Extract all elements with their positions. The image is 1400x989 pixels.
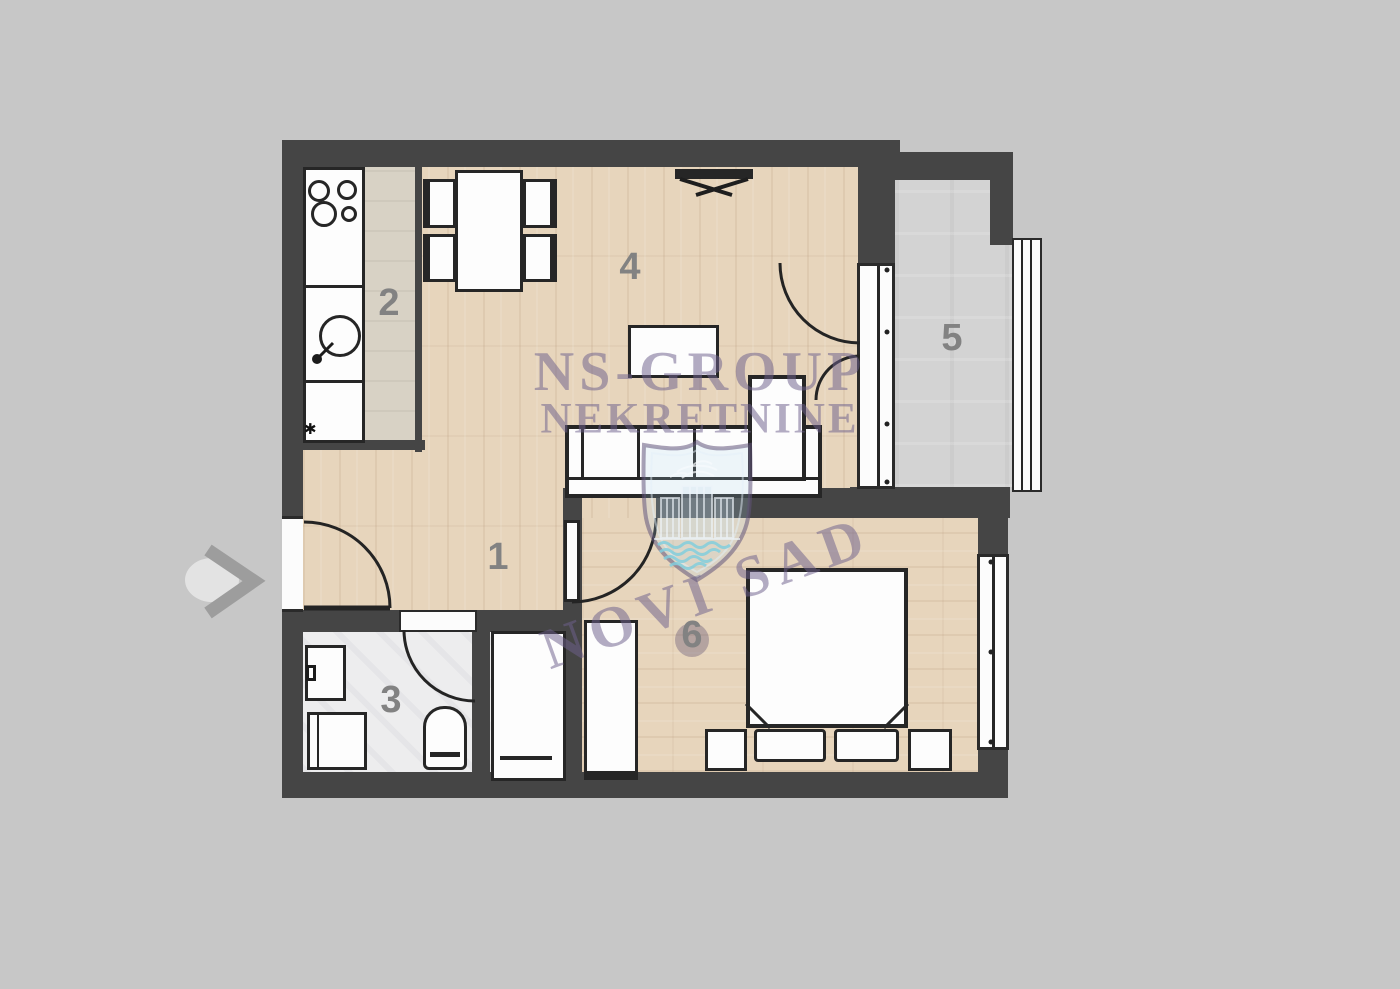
room-label-bathroom: 3 bbox=[380, 681, 401, 719]
washing-machine-door-line bbox=[317, 715, 319, 767]
counter-divider-2 bbox=[306, 380, 362, 383]
kitchen-sink bbox=[319, 315, 361, 357]
wall-living-terrace bbox=[858, 140, 895, 265]
wall-top bbox=[282, 140, 900, 167]
wall-left bbox=[282, 140, 303, 798]
dining-table bbox=[455, 170, 523, 292]
room-label-hall: 1 bbox=[487, 538, 508, 576]
bedroom-window-frame-line bbox=[992, 557, 995, 747]
terrace-railing-line-2 bbox=[1030, 240, 1032, 490]
dining-chair-right-bottom bbox=[523, 234, 557, 282]
stove-burner-3 bbox=[311, 201, 337, 227]
room-label-living: 4 bbox=[619, 248, 640, 286]
dining-chair-left-top bbox=[423, 179, 456, 228]
terrace-door-frame-line bbox=[877, 266, 880, 486]
kitchen-boiler-symbol: ✱ bbox=[304, 420, 317, 438]
bathroom-door-frame bbox=[399, 610, 477, 632]
room-label-kitchen: 2 bbox=[378, 284, 399, 322]
terrace-railing-line-1 bbox=[1021, 240, 1023, 490]
wall-bottom bbox=[282, 772, 1008, 798]
entrance-arrow-icon bbox=[208, 550, 254, 613]
dining-chair-right-top bbox=[523, 179, 557, 228]
terrace-railing bbox=[1012, 238, 1042, 492]
stove-burner-1 bbox=[308, 180, 330, 202]
bedroom-door-leaf bbox=[564, 520, 580, 602]
wall-bathroom-right bbox=[472, 632, 490, 772]
toilet-seat-line bbox=[430, 752, 460, 757]
wall-kitchen-partition bbox=[415, 167, 422, 452]
entrance-door-frame bbox=[282, 516, 303, 612]
bathroom-tap bbox=[306, 665, 316, 681]
nightstand-left bbox=[705, 729, 747, 771]
room-label-bedroom: 6 bbox=[681, 616, 702, 654]
washing-machine bbox=[307, 712, 367, 770]
novi-sad-crest-icon bbox=[632, 436, 762, 586]
nightstand-right bbox=[908, 729, 952, 771]
tv bbox=[675, 169, 753, 179]
pillow-right bbox=[834, 729, 899, 762]
counter-divider-1 bbox=[306, 285, 362, 288]
hall-wardrobe-handle bbox=[500, 756, 552, 760]
dining-chair-left-bottom bbox=[423, 234, 456, 282]
wall-terrace-right bbox=[990, 152, 1013, 245]
stove-burner-4 bbox=[341, 206, 357, 222]
bedroom-window bbox=[977, 554, 1009, 750]
entrance-highlight bbox=[185, 558, 239, 602]
room-label-terrace: 5 bbox=[941, 319, 962, 357]
pillow-left bbox=[754, 729, 826, 762]
stove-burner-2 bbox=[337, 180, 357, 200]
toilet bbox=[423, 706, 467, 770]
